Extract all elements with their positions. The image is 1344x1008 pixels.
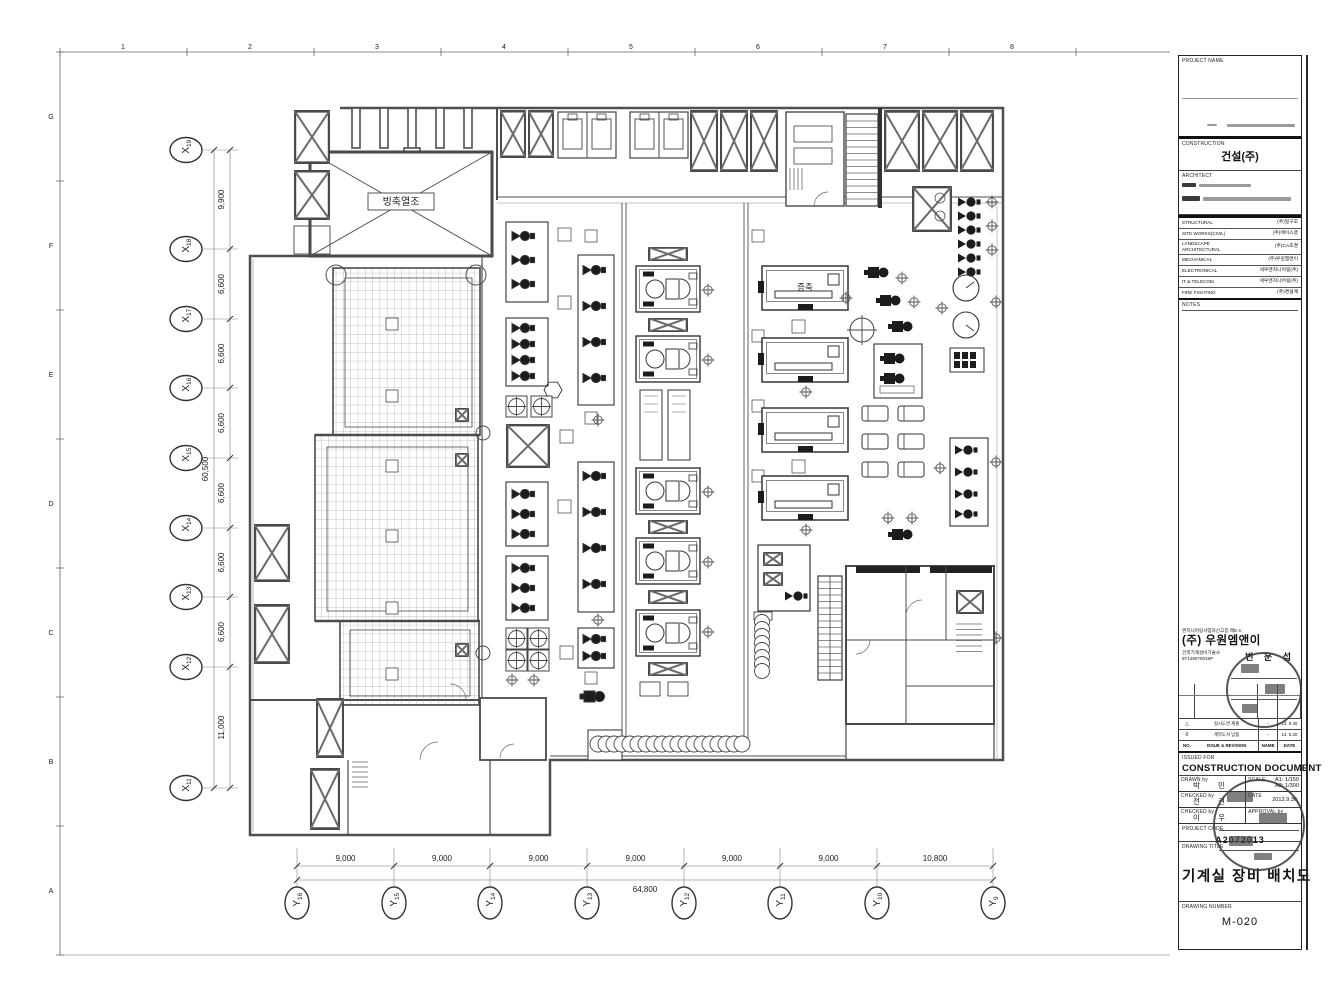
issued-for-label: ISSUED FOR [1182, 755, 1298, 761]
notes-section: NOTES [1179, 300, 1301, 314]
hx-column: 증축 [752, 230, 848, 611]
svg-text:6: 6 [756, 44, 760, 51]
svg-text:16: 16 [297, 892, 304, 900]
consultant-row: LANDSCAPE ARCHITECTURAL(주)CA조경 [1179, 240, 1301, 255]
svg-text:5: 5 [629, 44, 633, 51]
svg-text:1: 1 [121, 44, 125, 51]
revision-table: △ 실시도면 제출 - 13. 9.30 0 계약도서 납품 - 13. 5.2… [1179, 719, 1301, 753]
svg-text:15: 15 [394, 892, 401, 900]
svg-text:11,000: 11,000 [217, 715, 226, 739]
svg-text:10: 10 [877, 892, 884, 900]
sheet-outer-border [1306, 55, 1308, 950]
consultant-row: ELECTRONICAL세우엔지니어링(주) [1179, 266, 1301, 277]
drawing-sheet: 1 2 3 4 5 6 7 8 G F E D C B A [0, 0, 1344, 1008]
greeked-logo [1182, 196, 1200, 201]
construction-label: CONSTRUCTION [1182, 141, 1298, 147]
drawing-number-section: DRAWING NUMBER M-020 [1179, 902, 1301, 930]
svg-text:18: 18 [186, 238, 193, 246]
svg-text:6,600: 6,600 [217, 412, 226, 433]
revision-header: NO. ISSUE & REVISION NAME DATE [1179, 741, 1301, 753]
plan-canvas: 1 2 3 4 5 6 7 8 G F E D C B A [0, 0, 1344, 1008]
bottom-annex [311, 684, 546, 835]
svg-text:6,600: 6,600 [217, 621, 226, 642]
hx-tall-unit [758, 545, 810, 611]
greeked-text [1203, 197, 1291, 201]
svg-text:12: 12 [186, 656, 193, 664]
consultants-table: STRUCTURAL(주)일구조 SITE WORKS(CIVIL)(주)에이스… [1179, 218, 1301, 300]
project-name-section: PROJECT NAME [1179, 56, 1301, 136]
svg-text:15: 15 [186, 447, 193, 455]
svg-text:10,800: 10,800 [923, 854, 948, 863]
main-stair [818, 576, 842, 680]
svg-text:G: G [48, 114, 53, 121]
issued-for-section: ISSUED FOR CONSTRUCTION DOCUMENT [1179, 753, 1301, 776]
svg-text:F: F [49, 243, 53, 250]
engineer-seal-stamp [1226, 652, 1302, 728]
construction-section: CONSTRUCTION 건설(주) [1179, 139, 1301, 171]
consultant-row: FIRE FIGHTING(주)경설계 [1179, 288, 1301, 300]
svg-text:6,600: 6,600 [217, 273, 226, 294]
svg-text:11: 11 [780, 893, 787, 900]
ruler-letters: G F E D C B A [48, 114, 53, 895]
svg-text:9,900: 9,900 [217, 189, 226, 210]
drawing-number-label: DRAWING NUMBER [1182, 904, 1298, 910]
svg-text:14: 14 [186, 517, 193, 525]
company-name: (주) 우원엠앤이 [1182, 634, 1298, 648]
svg-text:11: 11 [186, 778, 193, 785]
comb-wall [352, 108, 472, 156]
approval-seal-stamp [1213, 779, 1305, 871]
x-grid-bubbles: X19 X18 X17 X16 X15 X14 X13 X12 X11 [170, 138, 202, 801]
svg-text:9,000: 9,000 [528, 854, 549, 863]
door-arc [420, 742, 438, 760]
svg-text:C: C [48, 630, 53, 637]
drawn-by-name: 박 민 [1193, 781, 1233, 790]
svg-text:9: 9 [993, 896, 1000, 900]
pump-column-a [506, 222, 574, 687]
equipment-cluster [840, 267, 925, 593]
chiller-column [636, 247, 715, 696]
stair-top-right [846, 114, 878, 206]
consultant-row: MECHANICAL(주)우원엠앤이 [1179, 255, 1301, 266]
svg-text:E: E [49, 372, 54, 379]
storage-grids [315, 265, 490, 705]
svg-text:13: 13 [186, 586, 193, 594]
consultant-row: STRUCTURAL(주)일구조 [1179, 218, 1301, 229]
pump-column-b [578, 230, 614, 702]
svg-text:13: 13 [587, 892, 594, 900]
dimension-labels-bottom: 9,000 9,000 9,000 9,000 9,000 9,000 10,8… [335, 854, 947, 894]
svg-text:16: 16 [186, 377, 193, 385]
svg-text:14: 14 [490, 892, 497, 900]
svg-text:9,000: 9,000 [335, 854, 356, 863]
svg-text:3: 3 [375, 44, 379, 51]
issued-for-value: CONSTRUCTION DOCUMENT [1182, 763, 1298, 775]
svg-text:9,000: 9,000 [625, 854, 646, 863]
construction-company: 건설(주) [1182, 151, 1298, 165]
svg-text:7: 7 [883, 44, 887, 51]
y-total-dimension: 64,800 [633, 885, 658, 894]
top-shafts [501, 108, 999, 277]
greeked-logo [1182, 183, 1196, 187]
drawing-title-value: 기계실 장비 배치도 [1182, 868, 1298, 886]
svg-text:B: B [49, 759, 54, 766]
svg-text:2: 2 [248, 44, 252, 51]
svg-text:19: 19 [186, 139, 193, 147]
dimension-labels-left: 9,900 6,600 6,600 6,600 6,600 6,600 6,60… [201, 189, 226, 739]
svg-text:17: 17 [186, 308, 193, 316]
svg-text:6,600: 6,600 [217, 482, 226, 503]
consultant-row: SITE WORKS(CIVIL)(주)에이스글 [1179, 229, 1301, 240]
svg-text:6,600: 6,600 [217, 343, 226, 364]
greeked-text [1227, 124, 1295, 127]
architect-label: ARCHITECT [1182, 173, 1298, 179]
svg-text:9,000: 9,000 [818, 854, 839, 863]
project-name-label: PROJECT NAME [1182, 58, 1298, 64]
notes-label: NOTES [1182, 302, 1298, 311]
control-box [950, 348, 984, 372]
svg-text:4: 4 [502, 44, 506, 51]
consultant-row: IT & TELECOM세우엔지니어링(주) [1179, 277, 1301, 288]
ice-storage-tank: 빙축열조 [294, 111, 492, 256]
svg-text:D: D [48, 501, 53, 508]
ruler-numbers: 1 2 3 4 5 6 7 8 [121, 44, 1014, 51]
ice-tank-label: 빙축열조 [383, 196, 420, 208]
svg-text:6,600: 6,600 [217, 552, 226, 573]
notes-blank-area [1179, 314, 1301, 626]
svg-text:A: A [49, 888, 54, 895]
annex-stair-treads [352, 762, 368, 787]
svg-text:12: 12 [684, 892, 691, 900]
pipe-manifold-vertical [754, 612, 772, 679]
office-suite [846, 566, 994, 760]
revision-row: 0 계약도서 납품 - 13. 5.20 [1179, 730, 1301, 741]
drawing-number-value: M-020 [1182, 916, 1298, 930]
greeked-text [1199, 184, 1251, 187]
svg-text:9,000: 9,000 [432, 854, 453, 863]
svg-text:9,000: 9,000 [722, 854, 743, 863]
architect-section: ARCHITECT [1179, 171, 1301, 215]
extension-label: 증축 [797, 282, 813, 292]
svg-text:8: 8 [1010, 44, 1014, 51]
greeked-text [1207, 124, 1217, 126]
